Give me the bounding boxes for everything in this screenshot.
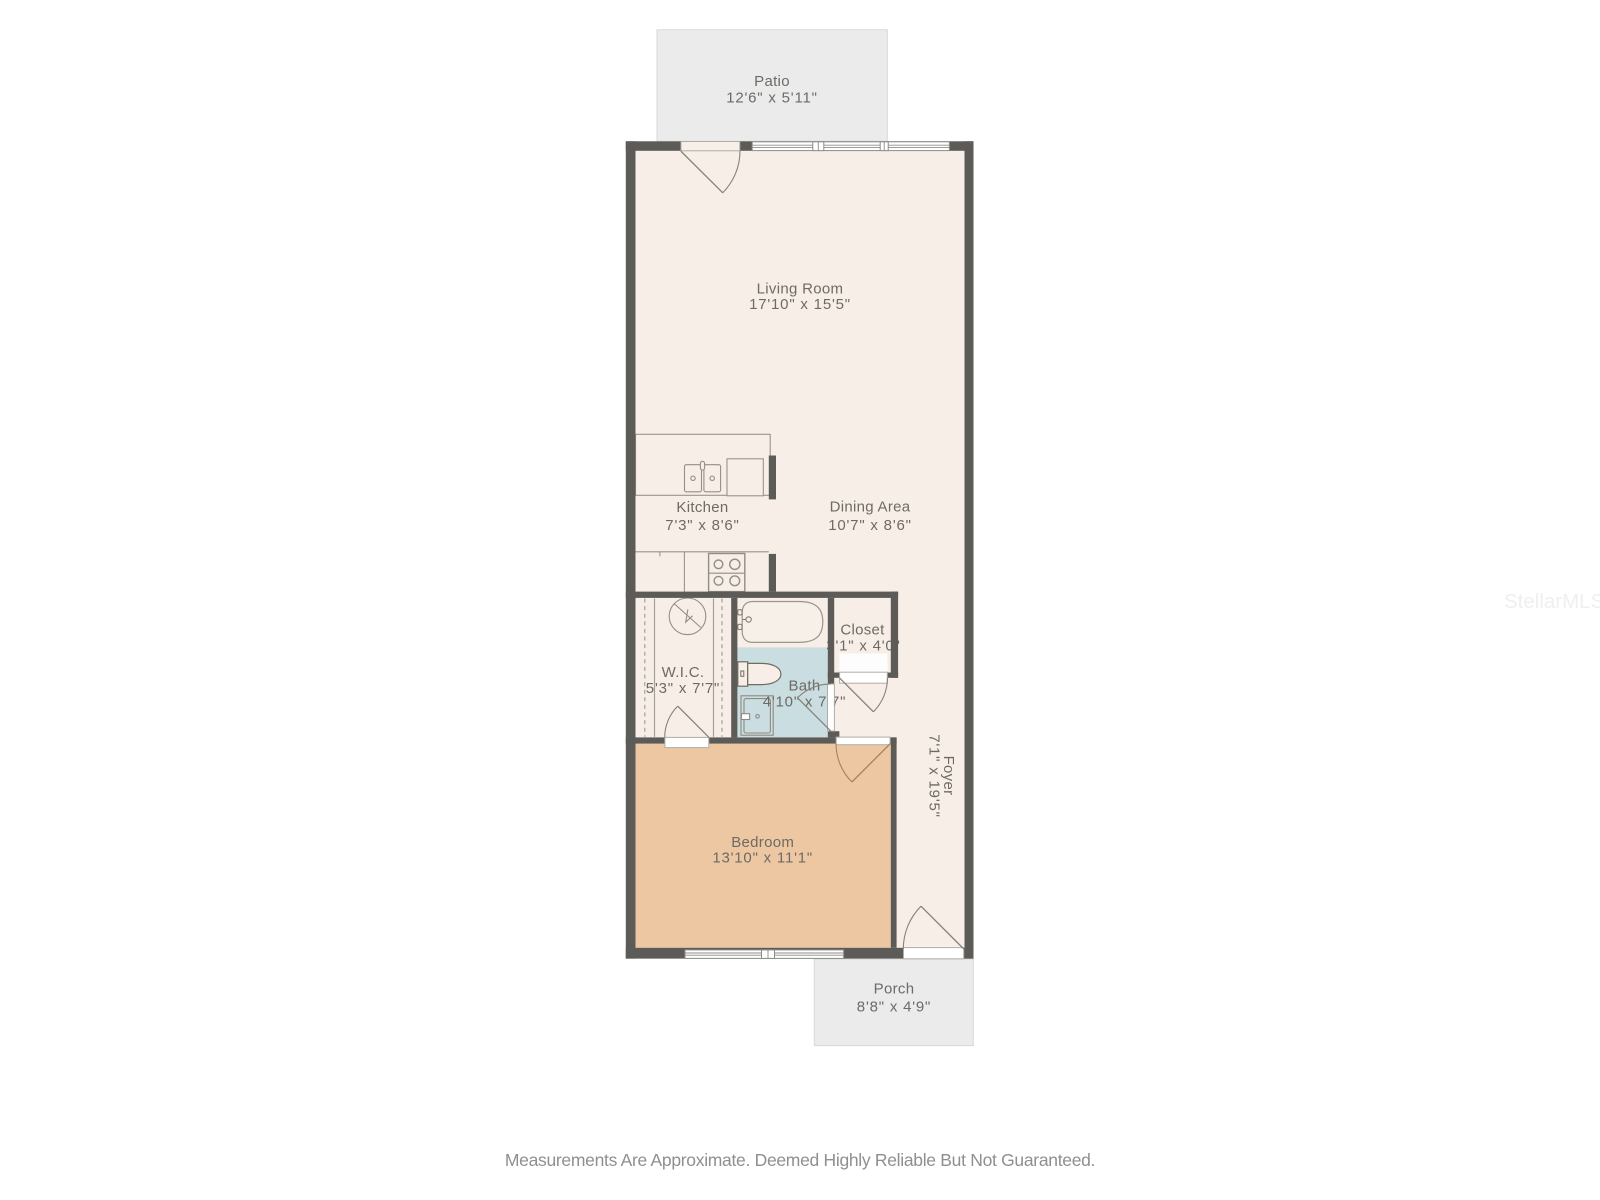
svg-text:8'8" x 4'9": 8'8" x 4'9" (857, 998, 931, 1015)
svg-text:13'10" x 11'1": 13'10" x 11'1" (712, 850, 813, 867)
svg-text:Porch: Porch (874, 981, 915, 998)
svg-text:10'7" x 8'6": 10'7" x 8'6" (828, 517, 912, 534)
svg-text:3'1" x 4'0": 3'1" x 4'0" (826, 638, 900, 655)
svg-text:17'10" x 15'5": 17'10" x 15'5" (749, 296, 851, 313)
svg-text:Measurements Are Approximate.: Measurements Are Approximate. Deemed Hig… (505, 1150, 1095, 1170)
svg-text:StellarMLS: StellarMLS (1504, 590, 1600, 613)
svg-text:Living Room: Living Room (757, 280, 844, 297)
svg-text:Closet: Closet (840, 622, 885, 639)
svg-text:12'6" x 5'11": 12'6" x 5'11" (726, 89, 818, 106)
svg-text:7'3" x 8'6": 7'3" x 8'6" (665, 517, 739, 534)
svg-text:7'1" x 19'5": 7'1" x 19'5" (926, 734, 943, 818)
svg-text:5'3" x 7'7": 5'3" x 7'7" (646, 680, 720, 697)
svg-text:Bedroom: Bedroom (731, 834, 794, 851)
svg-text:Dining Area: Dining Area (830, 499, 911, 516)
svg-text:Patio: Patio (754, 73, 790, 90)
svg-text:Kitchen: Kitchen (676, 499, 728, 516)
svg-text:W.I.C.: W.I.C. (662, 664, 705, 681)
